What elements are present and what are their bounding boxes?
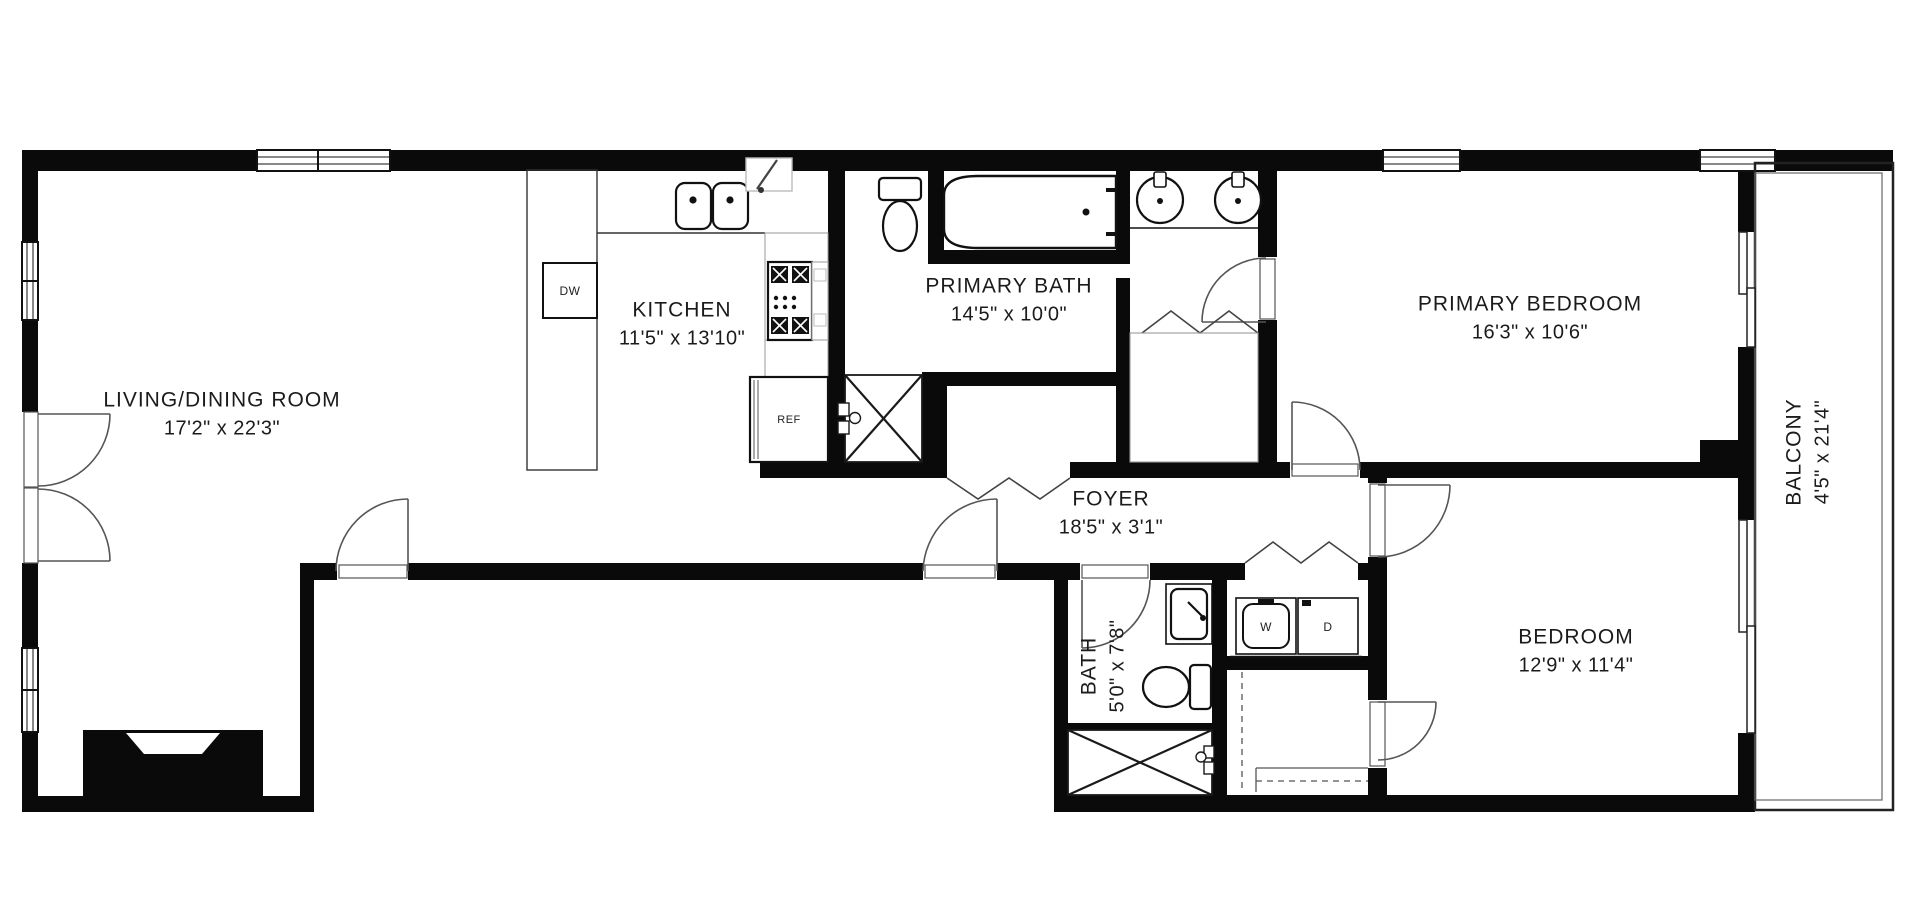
window-living-left-upper [22, 242, 38, 320]
room-label-kitchen: KITCHEN 11'5" x 13'10" [619, 295, 745, 352]
room-name: PRIMARY BATH [925, 271, 1092, 300]
room-name: BEDROOM [1518, 622, 1634, 651]
bedroom-closet-door-swing [1378, 702, 1436, 760]
room-label-living-dining: LIVING/DINING ROOM 17'2" x 22'3" [103, 385, 340, 442]
walkin-closet-outline [1130, 333, 1258, 462]
room-label-balcony: BALCONY 4'5" x 21'4" [1779, 398, 1836, 505]
room-name: BALCONY [1779, 398, 1808, 505]
bath-sink [1166, 584, 1212, 644]
walls [22, 150, 1893, 812]
french-door-upper [38, 414, 110, 486]
bifold-foyer-closet [947, 478, 1070, 499]
room-label-bath: BATH 5'0" x 7'8" [1074, 620, 1131, 713]
room-name: FOYER [1059, 484, 1164, 513]
room-dimensions: 4'5" x 21'4" [1809, 398, 1837, 505]
primary-bedroom-door-swing [1292, 402, 1360, 470]
sliding-door-primary-bedroom [1739, 232, 1755, 347]
bathtub [944, 176, 1116, 248]
fireplace [83, 730, 263, 812]
room-name: PRIMARY BEDROOM [1418, 289, 1642, 318]
floor-plan-canvas: LIVING/DINING ROOM 17'2" x 22'3" KITCHEN… [0, 0, 1920, 912]
refrigerator-label: REF [777, 414, 801, 426]
room-label-bedroom: BEDROOM 12'9" x 11'4" [1518, 622, 1634, 679]
room-dimensions: 5'0" x 7'8" [1104, 620, 1132, 713]
room-dimensions: 18'5" x 3'1" [1059, 514, 1164, 542]
room-label-primary-bedroom: PRIMARY BEDROOM 16'3" x 10'6" [1418, 289, 1642, 346]
window-living-top [257, 150, 390, 171]
room-dimensions: 11'5" x 13'10" [619, 325, 745, 353]
bedroom-closet-shelving [1242, 672, 1368, 792]
room-dimensions: 16'3" x 10'6" [1418, 319, 1642, 347]
bifold-laundry-closet [1245, 542, 1358, 563]
window-living-left-lower [22, 648, 38, 732]
room-dimensions: 14'5" x 10'0" [925, 301, 1092, 329]
stove [768, 262, 828, 340]
bath-toilet [1143, 665, 1211, 709]
primary-bath-bedroom-door-swing [1202, 258, 1266, 322]
entry-door-swing [923, 499, 997, 571]
linen-closet-x [1068, 730, 1214, 795]
sliding-door-bedroom [1739, 520, 1755, 733]
room-dimensions: 12'9" x 11'4" [1518, 652, 1634, 680]
double-vanity [1130, 172, 1261, 228]
dishwasher-label: DW [560, 284, 581, 298]
living-room-door-swing [336, 499, 408, 571]
window-primary-bedroom-top [1383, 150, 1460, 171]
room-name: LIVING/DINING ROOM [103, 385, 340, 414]
washer-label: W [1260, 620, 1272, 634]
room-label-primary-bath: PRIMARY BATH 14'5" x 10'0" [925, 271, 1092, 328]
floor-plan-drawing [0, 0, 1920, 912]
french-door-lower [38, 489, 110, 561]
room-dimensions: 17'2" x 22'3" [103, 415, 340, 443]
room-name: BATH [1074, 620, 1103, 713]
room-label-foyer: FOYER 18'5" x 3'1" [1059, 484, 1164, 541]
dryer-label: D [1323, 620, 1332, 634]
primary-toilet [879, 178, 921, 251]
bedroom-door-swing [1378, 485, 1450, 557]
room-name: KITCHEN [619, 295, 745, 324]
pantry-closet-x [838, 375, 922, 462]
window-top-right [1700, 150, 1775, 171]
